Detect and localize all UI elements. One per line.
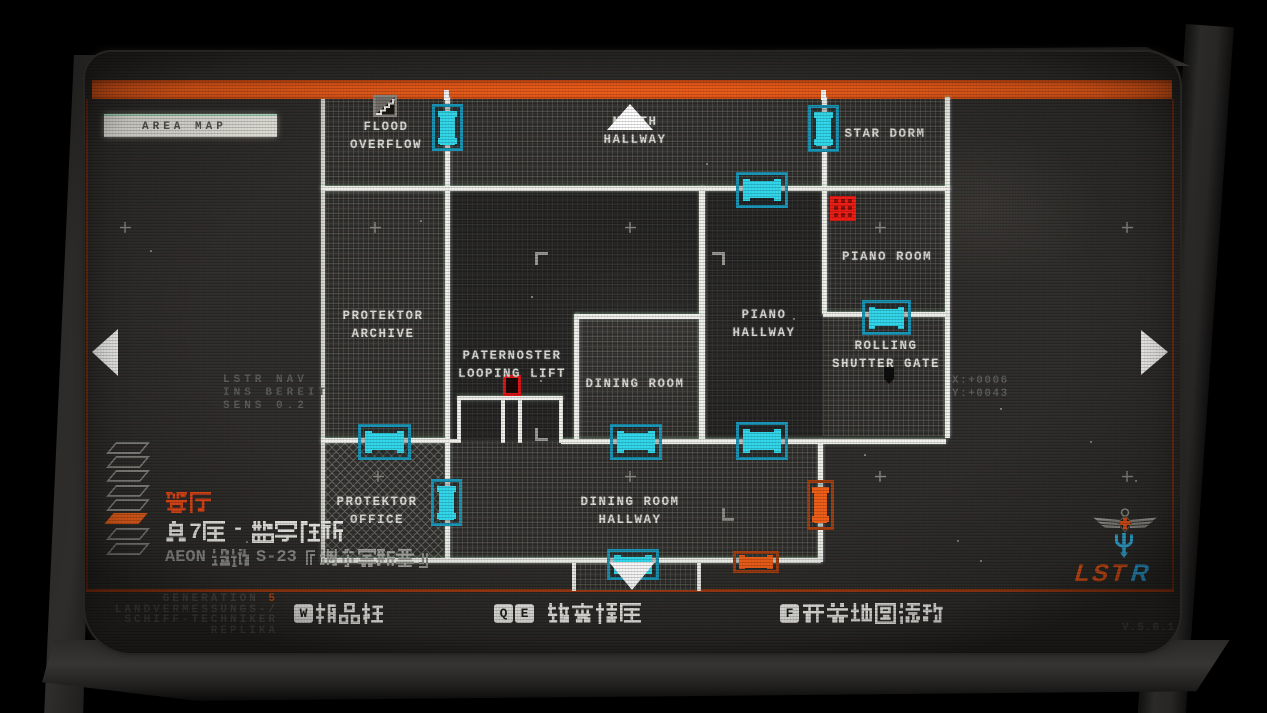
svg-text:LST: LST: [1072, 561, 1132, 585]
svg-text:R: R: [1128, 561, 1153, 585]
